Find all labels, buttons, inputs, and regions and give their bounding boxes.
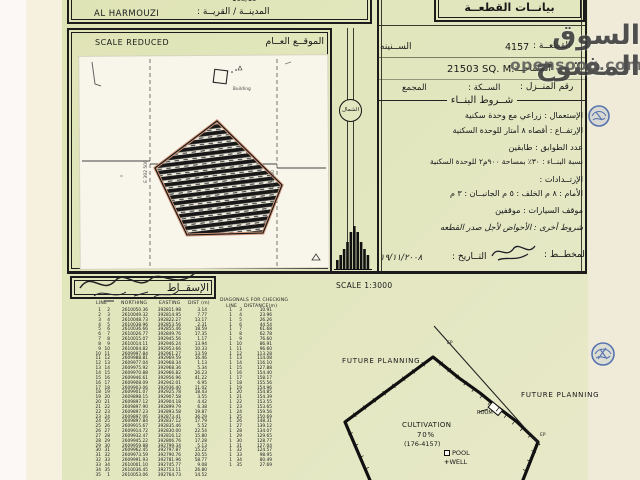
easting-grid-label-left: E 392 500 [144,160,149,183]
date-value: ١٩/١١/٢٠٠٨ [380,253,422,263]
pool-item: POOL [444,449,470,457]
building-symbol [213,69,227,83]
cultivation-percent: 70% [417,431,435,439]
planner-signature [488,240,538,266]
future-planning-label-right: FUTURE PLANNING [521,391,599,399]
skyline-icon [334,224,372,270]
condition-line: الإرتــدادات : [378,174,583,184]
conditions-title: شــروط البنــاء [447,95,517,106]
corner-mark [92,62,101,86]
scan-inner-margin [26,0,62,480]
pool-label: POOL [452,449,470,457]
building-label: Building [233,86,251,91]
easting-grid-label-right: E 393 000 [271,170,276,193]
divider-line [379,100,447,101]
room-label: ROOM [477,410,493,416]
column-border [377,0,379,273]
date-label: التــاريخ : [452,252,487,262]
plot-data-title-box: بيانــات القطعــة [434,0,585,22]
street-label: الســكة : [468,83,500,93]
opensooq-watermark-url: opensooq.com [510,56,640,74]
scan-left-margin [0,0,26,480]
well-item: +WELL [444,458,467,466]
village-name: الســنينه [380,42,412,52]
cultivation-label: CULTIVATION [402,421,451,429]
general-location-title-ar: الموقــع العــام [265,36,324,47]
well-label: WELL [449,458,467,466]
town-name-en: AL HARMOUZI [94,9,159,19]
blue-stamp-icon [590,341,616,367]
conditions-header: شــروط البنــاء [379,95,585,106]
map-number: 168/19 [232,0,257,3]
site-plan-scale: SCALE 1:3000 [336,281,392,290]
condition-line: شروط أخرى : الأحواض لأجل صدر القطعه [378,222,583,232]
condition-line: موقف السيارات : موقفين [378,205,583,215]
surveyor-signature [74,266,206,304]
blue-stamp-icon [587,104,611,128]
future-planning-label-left: FUTURE PLANNING [342,357,420,365]
town-label: المدينــة / القريــة : [197,7,270,17]
plot-hatched-area [155,121,282,235]
table-row: 3512610053.06392764.7314.52 [92,474,208,479]
scale-reduced-label: SCALE REDUCED [95,38,169,47]
complex-label: المجمع [402,83,427,93]
pool-icon [444,450,450,456]
table-row: 13527.69 [224,464,274,469]
house-number-label: رقم المنــزل : [520,82,573,92]
plot-data-title: بيانــات القطعــة [436,0,583,14]
diagonals-title: DIAGONALS FOR CHECKING [220,298,288,303]
planner-label: المخطــط : [544,250,587,260]
triangle-mark [312,254,320,260]
header-box: الولايــة : 168/19 رقم الخريطــة : AL HA… [67,0,372,24]
condition-line: الأمام : ٨ م الخلف : ٥ م الجانبــان : ٣ … [378,189,583,198]
coordinates-table: 122610050.36392811.983.14232610049.32392… [92,309,208,479]
diagonals-table: 1310.911423.961526.261644.541761.681862.… [224,309,274,469]
condition-line: الإرتفــاع : أقصاه ٨ أمتار للوحدة السكني… [378,126,583,135]
column-border-inner [381,0,382,273]
condition-line: نسبة البنــاء : ٣٠٪ بمساحة ٩٠٠م٢ للوحدة … [378,157,583,166]
plot-boundary [345,357,538,480]
north-indicator: الشمال [339,99,362,122]
location-map [80,56,328,268]
ep-marker: EP [540,433,546,438]
antenna-mark [238,66,242,70]
condition-line: عدد الطوابق : طابقين [378,142,583,152]
cultivation-ref: (176-4157) [404,440,440,448]
divider-line [517,100,585,101]
condition-line: الإستعمال : زراعي مع وحدة سكنية [378,110,583,120]
ep-marker: EP [447,341,453,346]
